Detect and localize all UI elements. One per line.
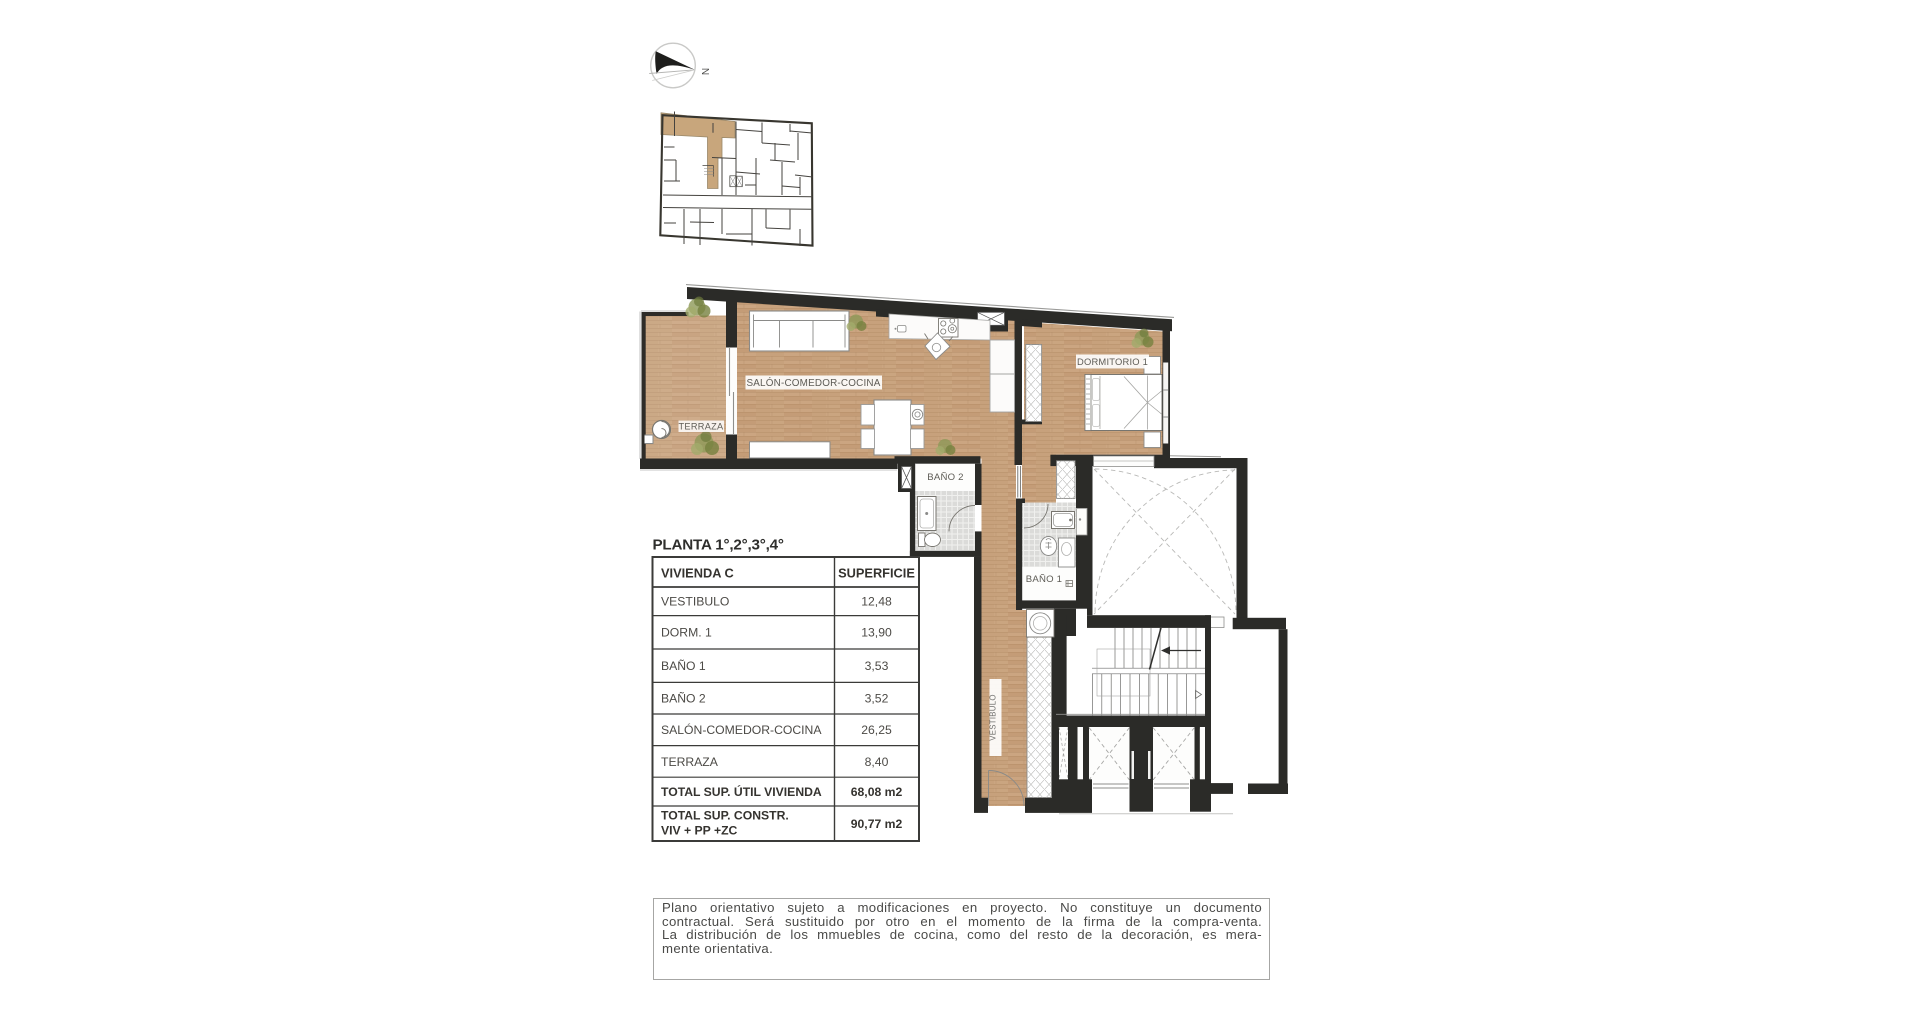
svg-text:VIVIENDA C: VIVIENDA C <box>661 566 734 581</box>
svg-text:VESTIBULO: VESTIBULO <box>989 694 998 740</box>
svg-text:3,53: 3,53 <box>865 659 889 673</box>
svg-text:VIV + PP +ZC: VIV + PP +ZC <box>661 824 738 838</box>
svg-text:N: N <box>699 68 710 75</box>
svg-text:8,40: 8,40 <box>865 755 889 769</box>
svg-text:3,52: 3,52 <box>865 692 889 706</box>
svg-text:SALÓN-COMEDOR-COCINA: SALÓN-COMEDOR-COCINA <box>661 722 822 737</box>
svg-text:BAÑO 1: BAÑO 1 <box>661 659 706 673</box>
svg-text:13,90: 13,90 <box>861 626 892 640</box>
svg-text:BAÑO 2: BAÑO 2 <box>661 692 706 706</box>
svg-text:BAÑO 2: BAÑO 2 <box>927 472 963 483</box>
svg-text:SUPERFICIE: SUPERFICIE <box>838 566 915 581</box>
svg-text:PLANTA 1°,2°,3°,4°: PLANTA 1°,2°,3°,4° <box>653 537 784 554</box>
svg-text:VESTIBULO: VESTIBULO <box>661 595 729 609</box>
svg-text:DORMITORIO 1: DORMITORIO 1 <box>1077 356 1148 367</box>
svg-text:TERRAZA: TERRAZA <box>661 755 719 769</box>
svg-text:TERRAZA: TERRAZA <box>679 422 725 432</box>
svg-text:68,08 m2: 68,08 m2 <box>851 785 903 799</box>
svg-text:BAÑO 1: BAÑO 1 <box>1026 574 1062 585</box>
svg-text:SALÓN-COMEDOR-COCINA: SALÓN-COMEDOR-COCINA <box>746 378 880 389</box>
svg-text:90,77 m2: 90,77 m2 <box>851 817 903 831</box>
svg-text:TOTAL SUP. CONSTR.: TOTAL SUP. CONSTR. <box>661 809 789 823</box>
svg-text:12,48: 12,48 <box>861 595 892 609</box>
svg-text:DORM. 1: DORM. 1 <box>661 626 712 640</box>
svg-text:26,25: 26,25 <box>861 723 892 737</box>
svg-text:TOTAL SUP. ÚTIL VIVIENDA: TOTAL SUP. ÚTIL VIVIENDA <box>661 784 822 799</box>
